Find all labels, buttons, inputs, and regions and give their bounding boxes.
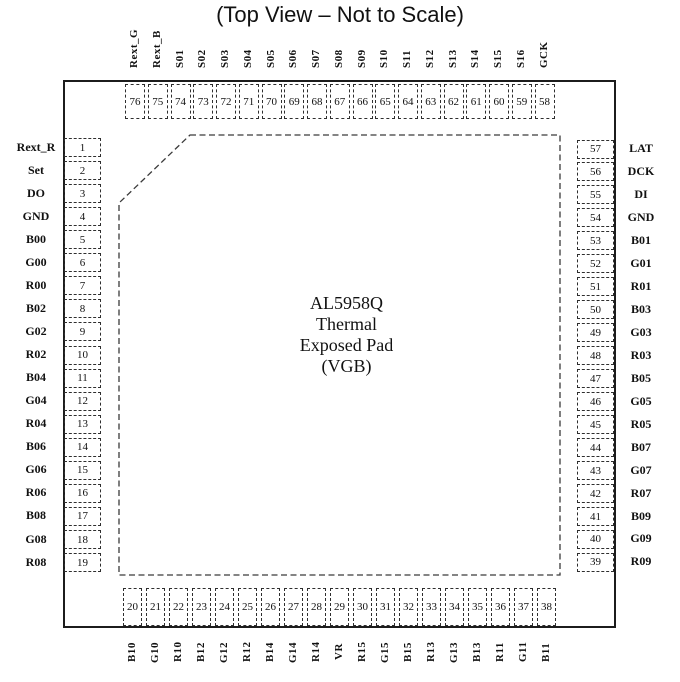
pin-box-37: 37 xyxy=(514,588,533,626)
pin-label: R01 xyxy=(611,279,671,294)
pin-label: G11 xyxy=(517,638,530,666)
pin-label: B09 xyxy=(611,509,671,524)
pin-box-45: 45 xyxy=(577,415,614,434)
pin-number: 19 xyxy=(77,557,88,569)
pin-box-31: 31 xyxy=(376,588,395,626)
pin-label: S13 xyxy=(447,24,460,68)
pin-label: B14 xyxy=(264,638,277,666)
pin-box-75: 75 xyxy=(148,84,168,119)
pin-box-28: 28 xyxy=(307,588,326,626)
pin-box-27: 27 xyxy=(284,588,303,626)
pin-number: 4 xyxy=(80,211,86,223)
pin-box-5: 5 xyxy=(64,230,101,249)
pin-label: S07 xyxy=(310,24,323,68)
pin-number: 62 xyxy=(448,96,459,108)
pin-label: R00 xyxy=(6,278,66,293)
pin-number: 70 xyxy=(266,96,277,108)
pin-number: 74 xyxy=(175,96,186,108)
pin-label: S06 xyxy=(287,24,300,68)
pin-label: G00 xyxy=(6,255,66,270)
pin-label: G13 xyxy=(448,638,461,666)
pin-box-6: 6 xyxy=(64,253,101,272)
pin-label: S02 xyxy=(196,24,209,68)
pin-label: R10 xyxy=(172,638,185,666)
pin-box-12: 12 xyxy=(64,392,101,411)
pin-label: R05 xyxy=(611,417,671,432)
pin-box-46: 46 xyxy=(577,392,614,411)
pin-label: Set xyxy=(6,163,66,178)
pin-label: R12 xyxy=(241,638,254,666)
pin-box-42: 42 xyxy=(577,484,614,503)
pin-number: 58 xyxy=(539,96,550,108)
pin-label: R15 xyxy=(356,638,369,666)
pin-label: B01 xyxy=(611,233,671,248)
chip-label-line-3: Exposed Pad xyxy=(133,335,560,356)
pin-box-48: 48 xyxy=(577,346,614,365)
pin-label: S10 xyxy=(378,24,391,68)
pin-number: 61 xyxy=(471,96,482,108)
pin-label: G12 xyxy=(218,638,231,666)
pin-number: 25 xyxy=(242,601,253,613)
pin-number: 66 xyxy=(357,96,368,108)
pin-label: B05 xyxy=(611,371,671,386)
chip-part-number: AL5958Q xyxy=(133,293,560,314)
pin-number: 24 xyxy=(219,601,230,613)
pin-number: 14 xyxy=(77,441,88,453)
pin-number: 5 xyxy=(80,234,86,246)
pin-box-49: 49 xyxy=(577,323,614,342)
pin-box-29: 29 xyxy=(330,588,349,626)
pin-number: 6 xyxy=(80,257,86,269)
pin-box-51: 51 xyxy=(577,277,614,296)
pin-label: Rext_B xyxy=(151,24,164,68)
chip-label-line-2: Thermal xyxy=(133,314,560,335)
pin-box-54: 54 xyxy=(577,208,614,227)
pin-box-18: 18 xyxy=(64,530,101,549)
pin-box-33: 33 xyxy=(422,588,441,626)
pin-label: R09 xyxy=(611,554,671,569)
pin-box-67: 67 xyxy=(330,84,350,119)
pin-number: 37 xyxy=(518,601,529,613)
pin-box-3: 3 xyxy=(64,184,101,203)
pin-label: B11 xyxy=(540,638,553,666)
pin-box-66: 66 xyxy=(353,84,373,119)
pin-box-43: 43 xyxy=(577,461,614,480)
pin-box-13: 13 xyxy=(64,415,101,434)
pin-number: 75 xyxy=(152,96,163,108)
pin-label: Rext_G xyxy=(128,24,141,68)
pin-box-38: 38 xyxy=(537,588,556,626)
pin-box-4: 4 xyxy=(64,207,101,226)
pin-box-35: 35 xyxy=(468,588,487,626)
pin-number: 56 xyxy=(590,166,601,178)
pin-label: B13 xyxy=(471,638,484,666)
pin-box-24: 24 xyxy=(215,588,234,626)
pin-label: S14 xyxy=(469,24,482,68)
pin-box-14: 14 xyxy=(64,438,101,457)
pin-number: 67 xyxy=(334,96,345,108)
chip-label-line-4: (VGB) xyxy=(133,356,560,377)
pin-number: 43 xyxy=(590,465,601,477)
pin-number: 65 xyxy=(380,96,391,108)
pin-label: S05 xyxy=(265,24,278,68)
pin-box-44: 44 xyxy=(577,438,614,457)
pin-number: 35 xyxy=(472,601,483,613)
pin-number: 57 xyxy=(590,143,601,155)
pin-box-40: 40 xyxy=(577,530,614,549)
pin-box-55: 55 xyxy=(577,185,614,204)
pin-number: 13 xyxy=(77,418,88,430)
pin-number: 16 xyxy=(77,487,88,499)
pin-label: S04 xyxy=(242,24,255,68)
pin-label: B03 xyxy=(611,302,671,317)
pin-box-21: 21 xyxy=(146,588,165,626)
pin-box-73: 73 xyxy=(193,84,213,119)
pin-box-2: 2 xyxy=(64,161,101,180)
pin-number: 20 xyxy=(127,601,138,613)
pin-number: 26 xyxy=(265,601,276,613)
pin-label: DI xyxy=(611,187,671,202)
pin-label: GND xyxy=(6,209,66,224)
pin-box-69: 69 xyxy=(284,84,304,119)
pin-box-26: 26 xyxy=(261,588,280,626)
pin-box-22: 22 xyxy=(169,588,188,626)
pin-label: R06 xyxy=(6,485,66,500)
pin-number: 36 xyxy=(495,601,506,613)
pin-box-19: 19 xyxy=(64,553,101,572)
pin-number: 12 xyxy=(77,395,88,407)
pin-label: Rext_R xyxy=(6,140,66,155)
pin-box-64: 64 xyxy=(398,84,418,119)
pin-label: GND xyxy=(611,210,671,225)
pin-number: 72 xyxy=(221,96,232,108)
pin-box-58: 58 xyxy=(535,84,555,119)
pin-box-32: 32 xyxy=(399,588,418,626)
pin-box-15: 15 xyxy=(64,461,101,480)
pin-number: 2 xyxy=(80,165,86,177)
pin-box-71: 71 xyxy=(239,84,259,119)
pin-number: 54 xyxy=(590,212,601,224)
pin-number: 9 xyxy=(80,326,86,338)
pin-box-53: 53 xyxy=(577,231,614,250)
pin-number: 15 xyxy=(77,464,88,476)
pin-label: G15 xyxy=(379,638,392,666)
pin-number: 8 xyxy=(80,303,86,315)
pin-label: B04 xyxy=(6,370,66,385)
pin-label: S15 xyxy=(492,24,505,68)
pin-label: S12 xyxy=(424,24,437,68)
pin-number: 17 xyxy=(77,510,88,522)
pin-label: G09 xyxy=(611,531,671,546)
pin-number: 3 xyxy=(80,188,86,200)
pin-label: R14 xyxy=(310,638,323,666)
pin-label: G08 xyxy=(6,532,66,547)
pin-label: G14 xyxy=(287,638,300,666)
thermal-pad-label: AL5958Q Thermal Exposed Pad (VGB) xyxy=(119,293,560,377)
pin-number: 22 xyxy=(173,601,184,613)
pin-number: 46 xyxy=(590,396,601,408)
pin-label: B02 xyxy=(6,301,66,316)
pin-number: 28 xyxy=(311,601,322,613)
pin-number: 33 xyxy=(426,601,437,613)
pin-number: 1 xyxy=(80,142,86,154)
pin-label: R02 xyxy=(6,347,66,362)
pin-number: 76 xyxy=(130,96,141,108)
pin-label: VR xyxy=(333,638,346,666)
pin-label: S03 xyxy=(219,24,232,68)
pin-box-39: 39 xyxy=(577,553,614,572)
pin-label: DO xyxy=(6,186,66,201)
pin-box-63: 63 xyxy=(421,84,441,119)
pin-label: G03 xyxy=(611,325,671,340)
pin-number: 45 xyxy=(590,419,601,431)
pin-box-8: 8 xyxy=(64,299,101,318)
pin-number: 41 xyxy=(590,511,601,523)
pin-label: LAT xyxy=(611,141,671,156)
pin-label: B08 xyxy=(6,508,66,523)
pin-box-47: 47 xyxy=(577,369,614,388)
pin-number: 63 xyxy=(425,96,436,108)
pin-label: R07 xyxy=(611,486,671,501)
pin-box-72: 72 xyxy=(216,84,236,119)
pin-label: S16 xyxy=(515,24,528,68)
pin-number: 48 xyxy=(590,350,601,362)
pin-label: B10 xyxy=(126,638,139,666)
pin-box-30: 30 xyxy=(353,588,372,626)
pin-number: 47 xyxy=(590,373,601,385)
pin-number: 49 xyxy=(590,327,601,339)
pin-label: R04 xyxy=(6,416,66,431)
pin-box-16: 16 xyxy=(64,484,101,503)
pin-box-41: 41 xyxy=(577,507,614,526)
pin-box-36: 36 xyxy=(491,588,510,626)
pin-box-68: 68 xyxy=(307,84,327,119)
pin-label: G10 xyxy=(149,638,162,666)
pin-label: B07 xyxy=(611,440,671,455)
pin-box-1: 1 xyxy=(64,138,101,157)
pin-box-50: 50 xyxy=(577,300,614,319)
pin-number: 40 xyxy=(590,533,601,545)
pin-label: G06 xyxy=(6,462,66,477)
pin-label: G01 xyxy=(611,256,671,271)
pin-number: 23 xyxy=(196,601,207,613)
pin-number: 53 xyxy=(590,235,601,247)
pin-label: GCK xyxy=(538,24,551,68)
pin-number: 34 xyxy=(449,601,460,613)
pin-number: 51 xyxy=(590,281,601,293)
pin-number: 18 xyxy=(77,534,88,546)
pin-number: 27 xyxy=(288,601,299,613)
pin-number: 50 xyxy=(590,304,601,316)
pin-box-10: 10 xyxy=(64,346,101,365)
pin-number: 60 xyxy=(494,96,505,108)
pin-box-60: 60 xyxy=(489,84,509,119)
pin-number: 7 xyxy=(80,280,86,292)
pin-box-23: 23 xyxy=(192,588,211,626)
pin-number: 71 xyxy=(243,96,254,108)
pin-label: G05 xyxy=(611,394,671,409)
pin-number: 52 xyxy=(590,258,601,270)
pin-box-9: 9 xyxy=(64,322,101,341)
pin-box-34: 34 xyxy=(445,588,464,626)
pin-label: G02 xyxy=(6,324,66,339)
pin-label: S11 xyxy=(401,24,414,68)
pin-box-74: 74 xyxy=(171,84,191,119)
pin-number: 11 xyxy=(77,372,88,384)
pin-number: 69 xyxy=(289,96,300,108)
pin-label: B12 xyxy=(195,638,208,666)
pin-box-61: 61 xyxy=(466,84,486,119)
pin-box-59: 59 xyxy=(512,84,532,119)
pin-box-56: 56 xyxy=(577,162,614,181)
pin-box-65: 65 xyxy=(375,84,395,119)
pin-box-52: 52 xyxy=(577,254,614,273)
pin-label: R08 xyxy=(6,555,66,570)
pin-number: 32 xyxy=(403,601,414,613)
pin-label: B00 xyxy=(6,232,66,247)
pin-box-25: 25 xyxy=(238,588,257,626)
pin-number: 59 xyxy=(516,96,527,108)
pin-number: 21 xyxy=(150,601,161,613)
pin-box-20: 20 xyxy=(123,588,142,626)
pin-number: 68 xyxy=(312,96,323,108)
pin-box-57: 57 xyxy=(577,140,614,159)
pin-number: 42 xyxy=(590,488,601,500)
pin-number: 64 xyxy=(403,96,414,108)
pin-label: S09 xyxy=(356,24,369,68)
pin-number: 38 xyxy=(541,601,552,613)
pin-label: B06 xyxy=(6,439,66,454)
pin-number: 29 xyxy=(334,601,345,613)
pin-number: 44 xyxy=(590,442,601,454)
pin-label: B15 xyxy=(402,638,415,666)
pin-number: 30 xyxy=(357,601,368,613)
pin-number: 31 xyxy=(380,601,391,613)
pin-number: 55 xyxy=(590,189,601,201)
pin-label: S08 xyxy=(333,24,346,68)
pin-label: R11 xyxy=(494,638,507,666)
pin-number: 39 xyxy=(590,556,601,568)
pin-number: 73 xyxy=(198,96,209,108)
pin-label: DCK xyxy=(611,164,671,179)
chip-pinout-diagram: (Top View – Not to Scale) AL5958Q Therma… xyxy=(0,0,680,682)
pin-label: G04 xyxy=(6,393,66,408)
pin-label: S01 xyxy=(174,24,187,68)
pin-box-70: 70 xyxy=(262,84,282,119)
pin-label: G07 xyxy=(611,463,671,478)
pin-box-11: 11 xyxy=(64,369,101,388)
pin-box-76: 76 xyxy=(125,84,145,119)
pin-box-62: 62 xyxy=(444,84,464,119)
pin-box-17: 17 xyxy=(64,507,101,526)
pin-label: R13 xyxy=(425,638,438,666)
pin-box-7: 7 xyxy=(64,276,101,295)
pin-label: R03 xyxy=(611,348,671,363)
pin-number: 10 xyxy=(77,349,88,361)
